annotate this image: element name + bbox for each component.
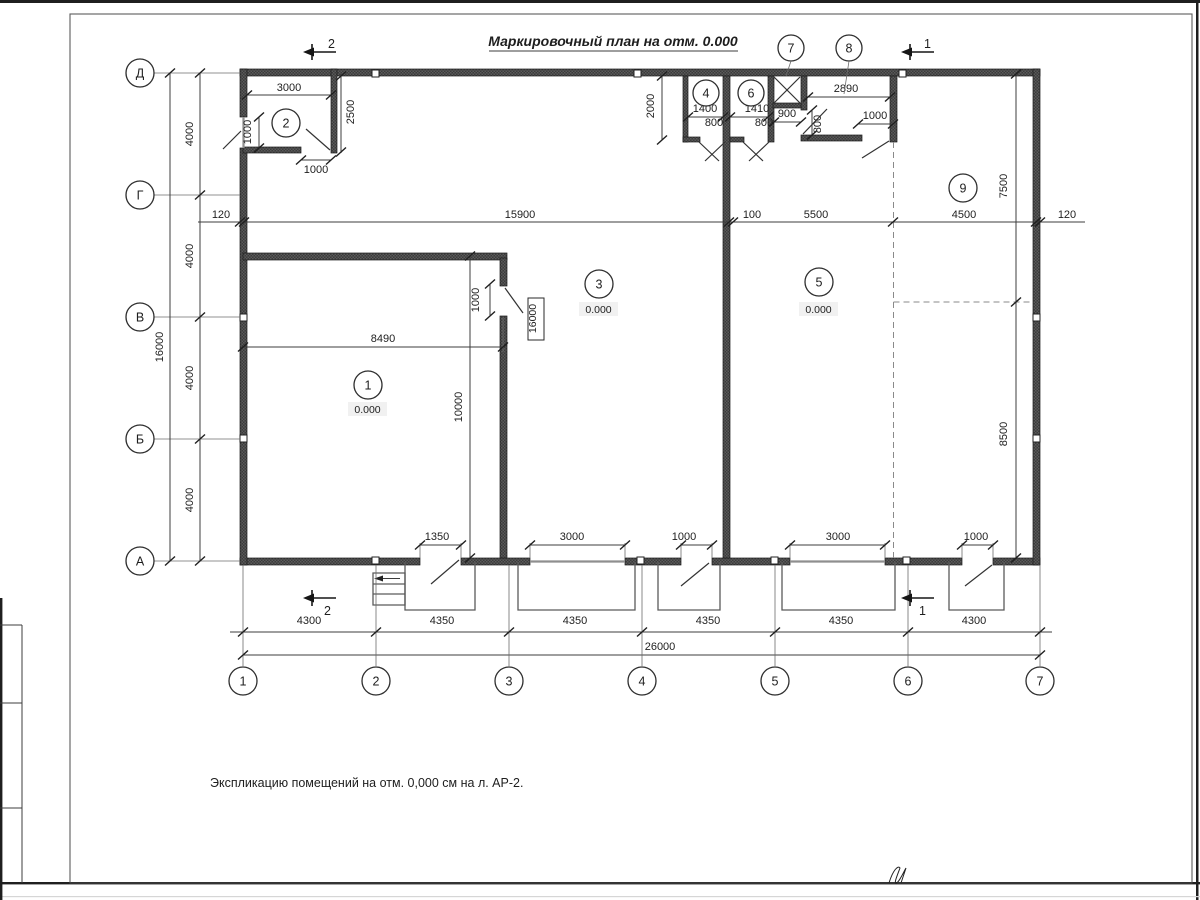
- room-1-elevation: 0.000: [354, 404, 380, 416]
- room-9-number: 9: [960, 182, 967, 196]
- walls: [240, 69, 1040, 565]
- stair-direction-arrow: [374, 576, 383, 582]
- drawing-frame: [70, 14, 1192, 883]
- dim-room2-3000: 3000: [277, 82, 301, 94]
- sheet-edges: [0, 0, 1200, 900]
- section-1-top: 1: [901, 37, 934, 60]
- room-4-number: 4: [703, 87, 710, 101]
- row-axis-A: А: [136, 555, 145, 569]
- dim-800-room8: 800: [812, 115, 824, 133]
- col-axis-bubbles: 1 2 3 4 5 6 7: [229, 667, 1054, 695]
- dim-800-room6: 800: [755, 117, 773, 129]
- mark-16000-label: 16000: [527, 304, 539, 333]
- section-1-bottom: 1: [901, 590, 934, 618]
- dim-door-1000-a: 1000: [672, 531, 696, 543]
- col-axis-6: 6: [905, 675, 912, 689]
- dim-bottom-total: 26000: [645, 641, 676, 653]
- col-axis-3: 3: [506, 675, 513, 689]
- elevation-marks: 0.000 0.000 0.000: [348, 302, 838, 416]
- windows: [244, 117, 886, 562]
- dimension-labels: 120 15900 100 5500 4500 120 4300 4350 43…: [154, 82, 1076, 653]
- drawing-sheet: Маркировочный план на отм. 0.000: [0, 0, 1200, 900]
- room-7-number: 7: [788, 42, 795, 56]
- dim-room2-door-1000: 1000: [304, 164, 328, 176]
- left-margin-table: [0, 625, 22, 883]
- door-swings: [223, 77, 992, 586]
- room-6-number: 6: [748, 87, 755, 101]
- signature-squiggle: [889, 867, 906, 883]
- room-2-number: 2: [283, 117, 290, 131]
- page-title: Маркировочный план на отм. 0.000: [488, 33, 738, 49]
- dim-left-total: 16000: [154, 332, 166, 363]
- section-2-top: 2: [303, 37, 336, 60]
- dim-bottom-6: 4300: [962, 615, 986, 627]
- dim-left-4: 4000: [184, 488, 196, 512]
- dim-bottom-4: 4350: [696, 615, 720, 627]
- dim-left-3: 4000: [184, 366, 196, 390]
- room9-dashed-boundary: [894, 142, 1034, 558]
- dim-door-1000-b: 1000: [964, 531, 988, 543]
- dim-2000: 2000: [645, 94, 657, 118]
- dim-bottom-2: 4350: [430, 615, 454, 627]
- dim-bottom-1: 4300: [297, 615, 321, 627]
- section-2-bottom-label: 2: [324, 604, 331, 618]
- dim-mid-15900: 15900: [505, 209, 536, 221]
- dim-win-3000-b: 3000: [826, 531, 850, 543]
- floor-plan-svg: Маркировочный план на отм. 0.000: [0, 0, 1200, 900]
- dim-room2-win-1000: 1000: [242, 120, 254, 144]
- dim-left-2: 4000: [184, 244, 196, 268]
- dim-room8-1000: 1000: [863, 110, 887, 122]
- col-axis-7: 7: [1037, 675, 1044, 689]
- dim-right-8500: 8500: [998, 422, 1010, 446]
- col-axis-5: 5: [772, 675, 779, 689]
- room-3-number: 3: [596, 278, 603, 292]
- room-5-number: 5: [816, 276, 823, 290]
- room-1-number: 1: [365, 379, 372, 393]
- row-axis-V: В: [136, 311, 144, 325]
- section-1-top-label: 1: [924, 37, 931, 51]
- dim-room1-door-1000: 1000: [470, 288, 482, 312]
- dim-mid-100: 100: [743, 209, 761, 221]
- col-axis-4: 4: [639, 675, 646, 689]
- lintel-mark-16000: 16000: [527, 298, 544, 340]
- section-2-bottom: 2: [303, 590, 336, 618]
- dim-room1-10000: 10000: [453, 392, 465, 423]
- dim-mid-4500: 4500: [952, 209, 976, 221]
- dim-2890: 2890: [834, 83, 858, 95]
- row-axis-bubbles: Д Г В Б А: [126, 59, 154, 575]
- dim-win-3000-a: 3000: [560, 531, 584, 543]
- dim-mid-5500: 5500: [804, 209, 828, 221]
- dim-800-room4: 800: [705, 117, 723, 129]
- dim-left-1: 4000: [184, 122, 196, 146]
- dim-1350: 1350: [425, 531, 449, 543]
- dim-bottom-3: 4350: [563, 615, 587, 627]
- col-axis-2: 2: [373, 675, 380, 689]
- dim-room1-8490: 8490: [371, 333, 395, 345]
- room-3-elevation: 0.000: [585, 304, 611, 316]
- dim-mid-120-right: 120: [1058, 209, 1076, 221]
- section-1-bottom-label: 1: [919, 604, 926, 618]
- dim-right-7500: 7500: [998, 174, 1010, 198]
- explication-note: Экспликацию помещений на отм. 0,000 см н…: [210, 776, 523, 790]
- title-block: Маркировочный план на отм. 0.000: [488, 33, 738, 51]
- section-2-top-label: 2: [328, 37, 335, 51]
- col-axis-1: 1: [240, 675, 247, 689]
- row-axis-D: Д: [136, 67, 145, 81]
- row-axis-G: Г: [137, 189, 144, 203]
- row-axis-B: Б: [136, 433, 144, 447]
- room-5-elevation: 0.000: [805, 304, 831, 316]
- room-8-number: 8: [846, 42, 853, 56]
- dim-room2-2500: 2500: [345, 100, 357, 124]
- dim-900: 900: [778, 108, 796, 120]
- dimension-lines: [154, 69, 1085, 667]
- dim-bottom-5: 4350: [829, 615, 853, 627]
- dim-mid-120-left: 120: [212, 209, 230, 221]
